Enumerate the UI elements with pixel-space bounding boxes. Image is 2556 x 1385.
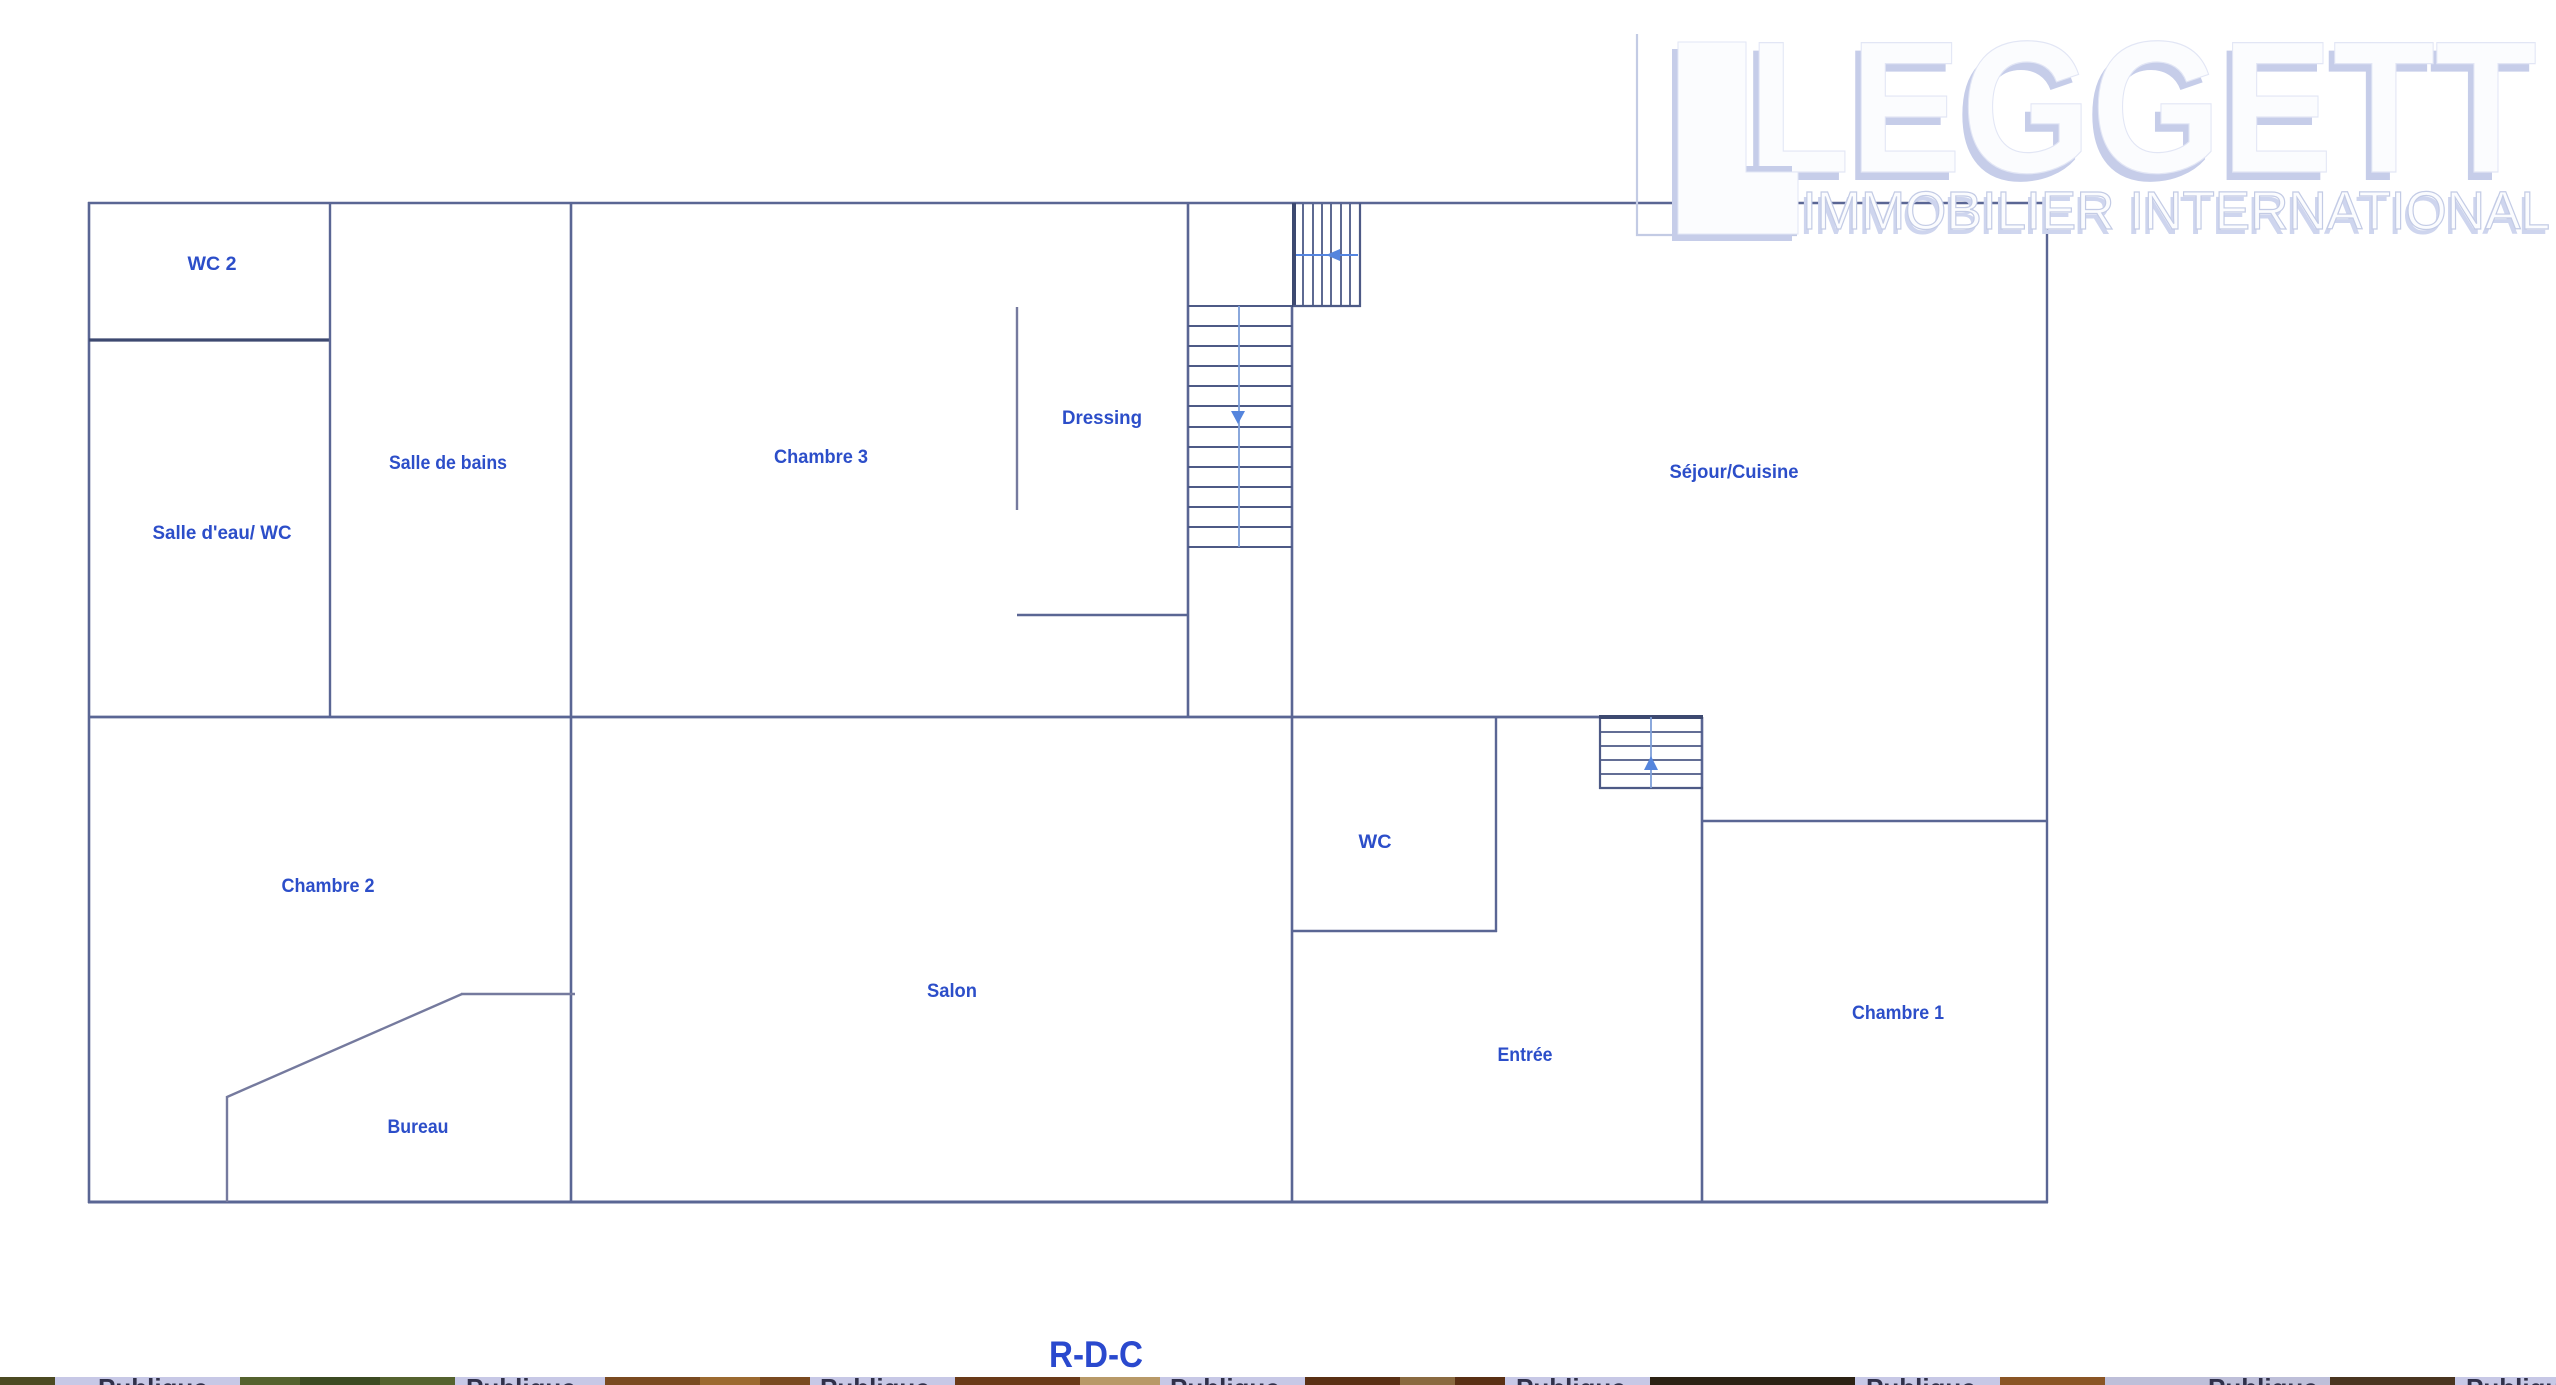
svg-text:Entrée: Entrée xyxy=(1498,1045,1553,1066)
svg-text:Publique: Publique xyxy=(466,1373,576,1385)
svg-text:Séjour/Cuisine: Séjour/Cuisine xyxy=(1670,462,1799,483)
svg-text:Salle d'eau/ WC: Salle d'eau/ WC xyxy=(153,523,292,544)
svg-text:Salon: Salon xyxy=(927,981,977,1002)
svg-text:Dressing: Dressing xyxy=(1062,408,1142,429)
svg-text:Publique: Publique xyxy=(820,1373,930,1385)
svg-text:Publique: Publique xyxy=(2466,1373,2556,1385)
svg-text:Publique: Publique xyxy=(98,1373,208,1385)
svg-text:R-D-C: R-D-C xyxy=(1049,1334,1143,1375)
svg-text:Chambre 2: Chambre 2 xyxy=(282,876,375,897)
svg-text:Publique: Publique xyxy=(1516,1373,1626,1385)
svg-text:Bureau: Bureau xyxy=(388,1117,449,1138)
svg-text:Publique: Publique xyxy=(1866,1373,1976,1385)
svg-text:Chambre 1: Chambre 1 xyxy=(1852,1003,1944,1024)
svg-text:Publique: Publique xyxy=(1170,1373,1280,1385)
svg-text:WC: WC xyxy=(1359,832,1392,853)
svg-text:WC 2: WC 2 xyxy=(188,254,237,275)
svg-text:Salle de bains: Salle de bains xyxy=(389,453,507,474)
svg-text:Publique: Publique xyxy=(2208,1373,2318,1385)
svg-text:IMMOBILIER INTERNATIONAL: IMMOBILIER INTERNATIONAL xyxy=(1802,181,2550,241)
svg-text:Chambre 3: Chambre 3 xyxy=(774,447,868,468)
